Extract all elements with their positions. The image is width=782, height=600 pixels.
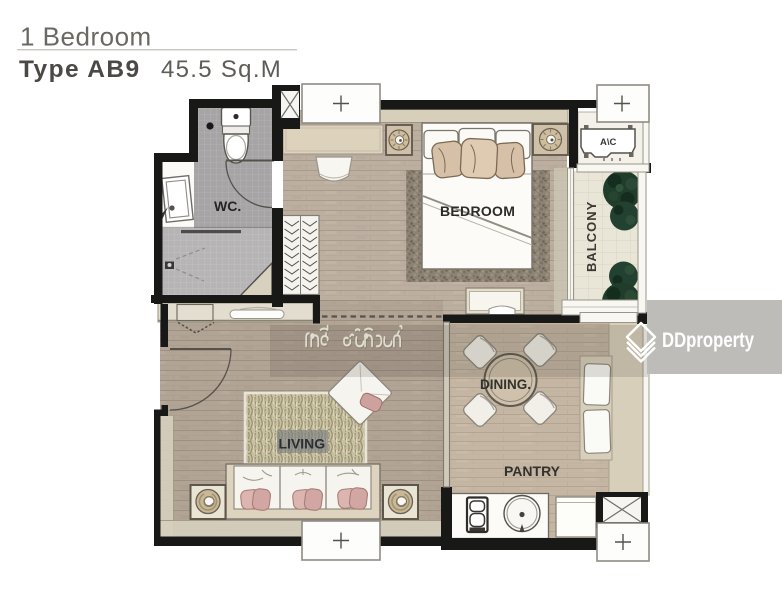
svg-text:1 Bedroom: 1 Bedroom — [20, 22, 152, 52]
svg-text:BEDROOM: BEDROOM — [440, 203, 515, 219]
svg-text:PANTRY: PANTRY — [504, 463, 561, 479]
svg-text:BALCONY: BALCONY — [584, 201, 599, 272]
svg-text:A\C: A\C — [600, 137, 617, 148]
svg-text:Type AB9: Type AB9 — [19, 56, 140, 83]
svg-text:WC.: WC. — [214, 198, 241, 214]
svg-text:DINING.: DINING. — [480, 377, 531, 392]
svg-text:DDproperty: DDproperty — [662, 328, 754, 352]
svg-text:45.5 Sq.M: 45.5 Sq.M — [161, 56, 282, 83]
svg-text:LIVING: LIVING — [279, 436, 326, 452]
